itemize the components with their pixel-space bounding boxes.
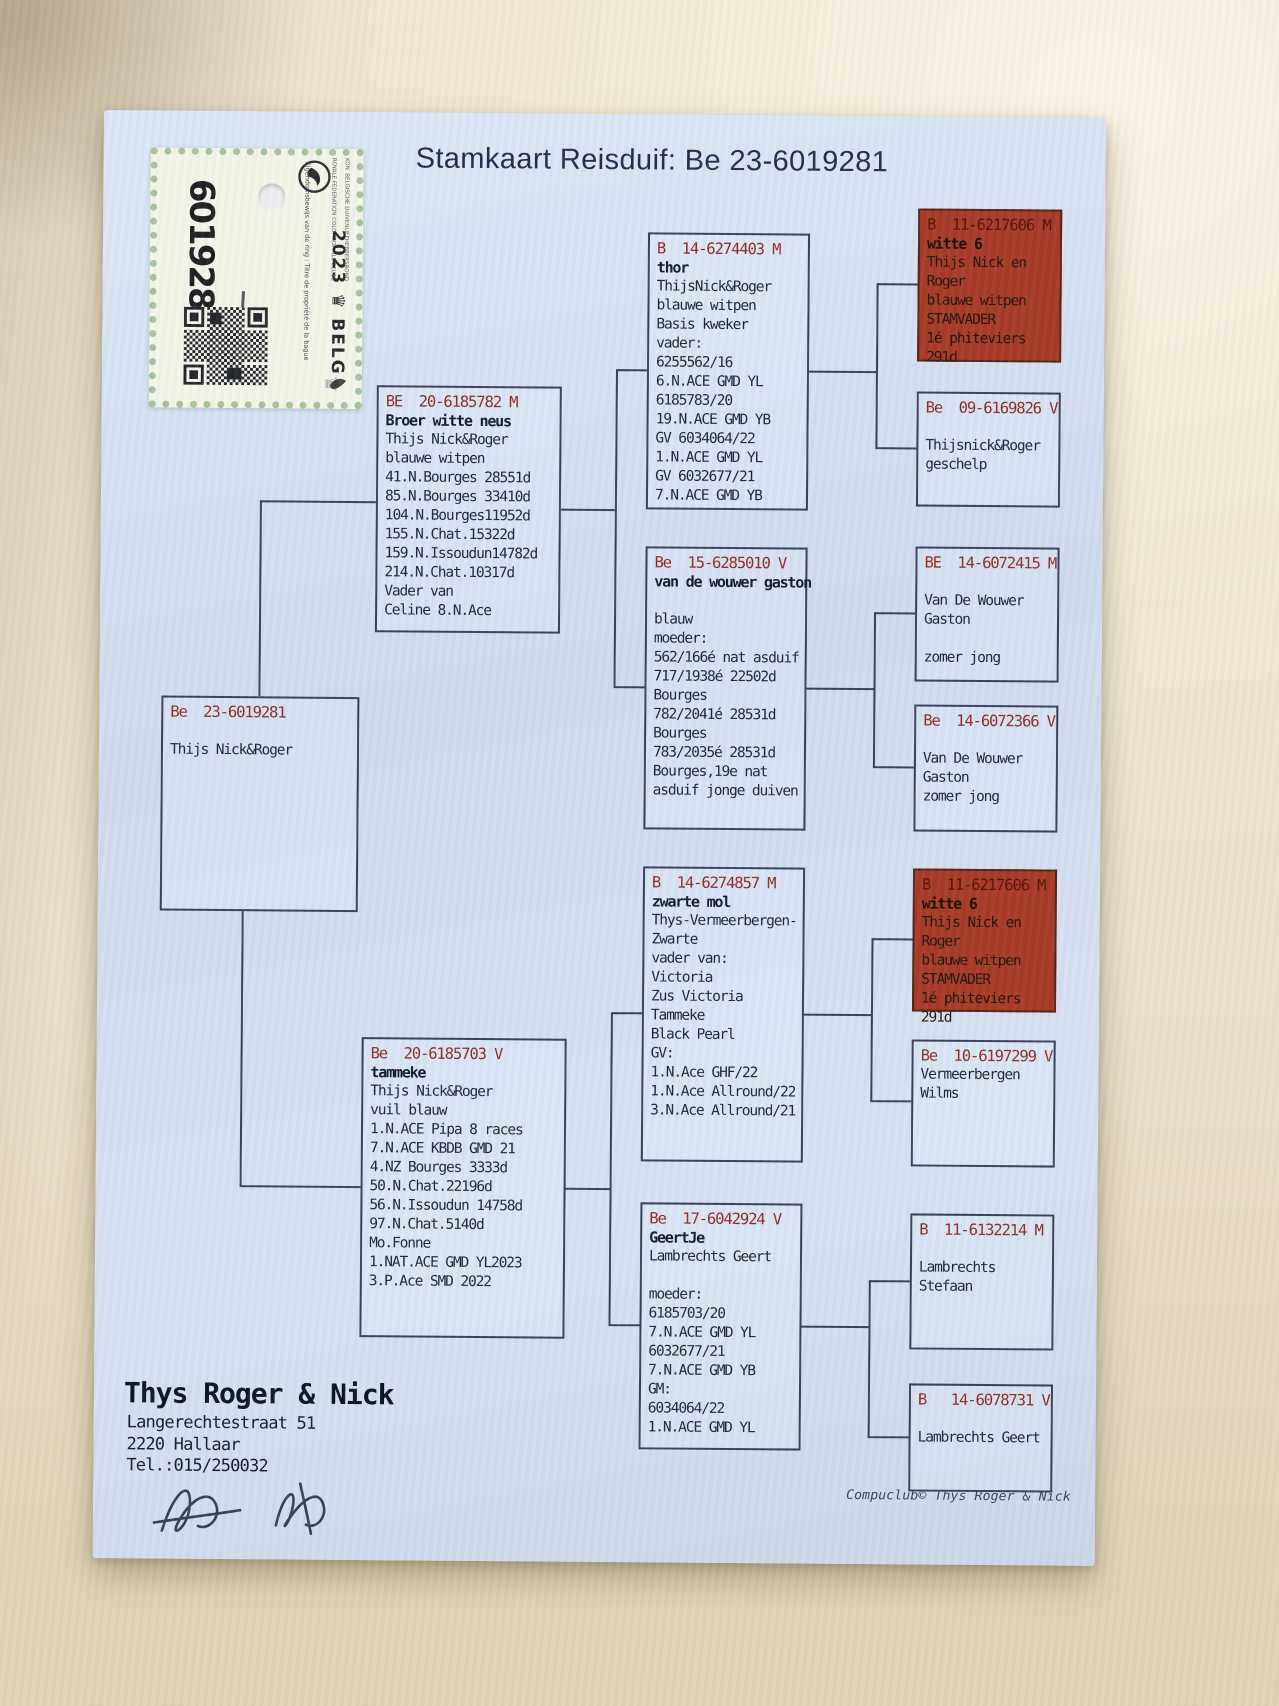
pigeon-details: Van De Wouwer Gaston zomer jong xyxy=(923,731,1053,808)
ring-number-text: B 11-6217606 M xyxy=(922,875,1051,896)
pedigree-box-greatgranddam-4: B 14-6078731 V Lambrechts Geert xyxy=(908,1383,1053,1492)
pedigree-box-greatgrandsire-1-highlight: B 11-6217606 M witte 6 Thijs Nick en Rog… xyxy=(917,208,1062,362)
pigeon-details: Thijs Nick&Roger vuil blauw 1.N.ACE Pipa… xyxy=(369,1082,561,1292)
pigeon-details: Thijsnick&Roger geschelp xyxy=(925,418,1054,476)
pigeon-name: thor xyxy=(657,258,804,278)
pigeon-details: Van De Wouwer Gaston zomer jong xyxy=(924,573,1054,669)
pedigree-box-sire: BE 20-6185782 M Broer witte neus Thijs N… xyxy=(375,385,562,633)
pigeon-name: witte 6 xyxy=(927,235,1056,255)
handwritten-signature xyxy=(148,1472,409,1554)
ring-number-text: BE 20-6185782 M xyxy=(386,391,556,412)
ring-number-text: Be 14-6072366 V xyxy=(923,711,1052,732)
photo-background-fabric: Stamkaart Reisduif: Be 23-6019281 601928… xyxy=(0,0,1279,1706)
owner-address: Langerechtestraat 51 2220 Hallaar Tel.:0… xyxy=(126,1412,315,1478)
pigeon-details: blauw moeder: 562/166é nat asduif 717/19… xyxy=(653,591,802,801)
pigeon-name: Broer witte neus xyxy=(386,411,556,431)
pigeon-name: witte 6 xyxy=(922,895,1051,915)
pigeon-details: Lambrechts Geert moeder: 6185703/20 7.N.… xyxy=(648,1247,796,1438)
pigeon-details: Thijs Nick en Roger blauwe witpen STAMVA… xyxy=(921,914,1051,1029)
ring-number-text: Be 15-6285010 V xyxy=(654,552,801,573)
ring-number-text: Be 10-6197299 V xyxy=(921,1046,1050,1067)
pigeon-details: Lambrechts Geert xyxy=(918,1409,1047,1448)
pedigree-box-grandsire-paternal: B 14-6274403 M thor ThijsNick&Roger blau… xyxy=(646,232,810,510)
owner-city: 2220 Hallaar xyxy=(126,1434,315,1457)
ring-number-text: B 11-6217606 M xyxy=(927,215,1056,236)
ring-number-text: Be 23-6019281 xyxy=(170,702,353,723)
pedigree-box-greatgranddam-1: Be 09-6169826 V Thijsnick&Roger geschelp xyxy=(916,391,1061,507)
pigeon-details: Thijs Nick&Roger blauwe witpen 41.N.Bour… xyxy=(384,430,555,621)
ring-number-text: Be 17-6042924 V xyxy=(649,1208,796,1229)
pedigree-box-granddam-paternal: Be 15-6285010 V van de wouwer gaston bla… xyxy=(643,546,807,830)
pedigree-box-greatgrandsire-4: B 11-6132214 M Lambrechts Stefaan xyxy=(909,1213,1054,1350)
pigeon-details: Thys-Vermeerbergen- Zwarte vader van: Vi… xyxy=(650,911,799,1121)
pigeon-details: Vermeerbergen Wilms xyxy=(920,1066,1049,1105)
print-software-credit: Compuclub© Thys Roger & Nick xyxy=(846,1488,1071,1505)
pedigree-box-greatgrandsire-3-highlight: B 11-6217606 M witte 6 Thijs Nick en Rog… xyxy=(912,868,1057,1012)
owner-street: Langerechtestraat 51 xyxy=(127,1412,316,1435)
ring-number-text: Be 09-6169826 V xyxy=(926,398,1055,419)
ring-number-text: B 14-6274403 M xyxy=(657,238,804,259)
pedigree-box-subject: Be 23-6019281 Thijs Nick&Roger xyxy=(160,696,360,913)
ring-number-text: B 14-6274857 M xyxy=(652,872,799,893)
pedigree-box-greatgranddam-3: Be 10-6197299 V Vermeerbergen Wilms xyxy=(911,1039,1056,1167)
ring-number-text: B 11-6132214 M xyxy=(919,1220,1048,1241)
ring-number-text: B 14-6078731 V xyxy=(918,1389,1047,1410)
ring-number-text: Be 20-6185703 V xyxy=(371,1043,561,1064)
pigeon-name: van de wouwer gaston xyxy=(654,572,801,592)
pedigree-box-dam: Be 20-6185703 V tammeke Thijs Nick&Roger… xyxy=(359,1037,566,1339)
pedigree-box-greatgrandsire-2: BE 14-6072415 M Van De Wouwer Gaston zom… xyxy=(915,546,1060,682)
pedigree-box-greatgranddam-2: Be 14-6072366 V Van De Wouwer Gaston zom… xyxy=(913,704,1058,832)
pigeon-details: Thijs Nick&Roger xyxy=(170,722,353,761)
pedigree-card-paper: Stamkaart Reisduif: Be 23-6019281 601928… xyxy=(93,110,1106,1566)
pigeon-details: Lambrechts Stefaan xyxy=(919,1240,1048,1298)
owner-name: Thys Roger & Nick xyxy=(124,1376,394,1411)
pigeon-name: tammeke xyxy=(370,1063,560,1083)
pedigree-box-grandsire-maternal: B 14-6274857 M zwarte mol Thys-Vermeerbe… xyxy=(641,866,805,1162)
pigeon-details: ThijsNick&Roger blauwe witpen Basis kwek… xyxy=(655,277,804,506)
pigeon-name: zwarte mol xyxy=(652,892,799,912)
pedigree-box-granddam-maternal: Be 17-6042924 V GeertJe Lambrechts Geert… xyxy=(639,1202,803,1450)
ring-number-text: BE 14-6072415 M xyxy=(924,553,1053,574)
pigeon-details: Thijs Nick en Roger blauwe witpen STAMVA… xyxy=(926,254,1056,369)
pigeon-name: GeertJe xyxy=(649,1228,796,1248)
